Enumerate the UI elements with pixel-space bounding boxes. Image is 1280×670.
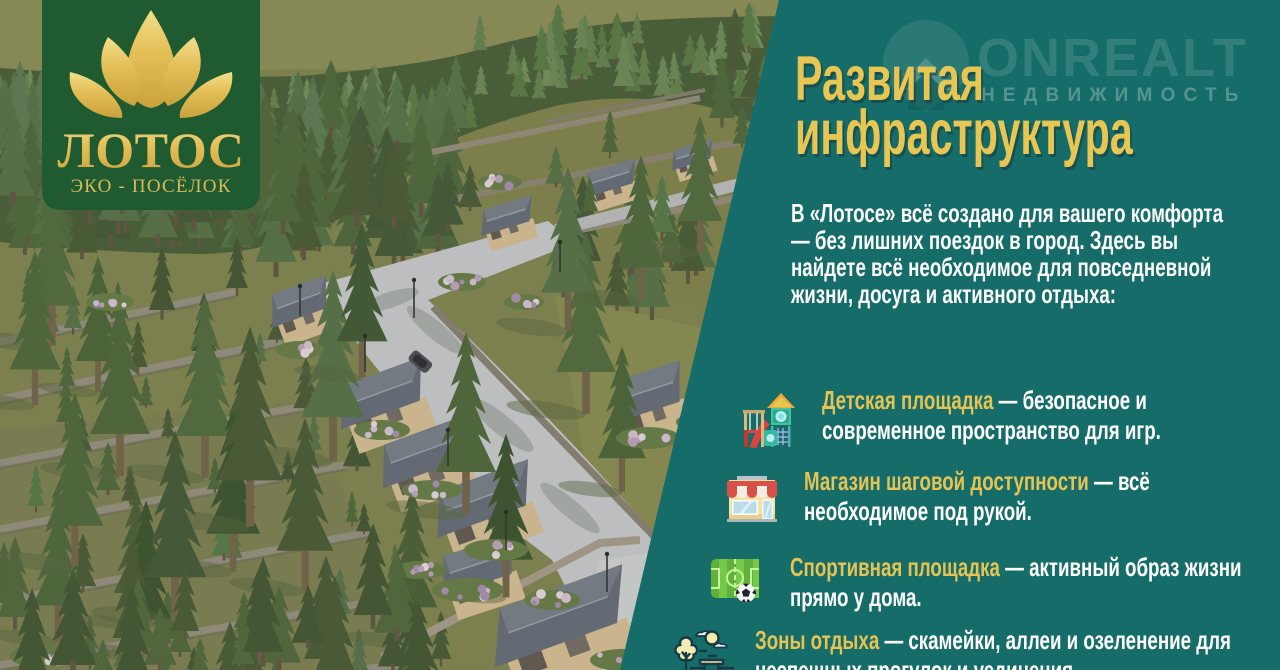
svg-text:ЛОТОС: ЛОТОС	[58, 122, 245, 178]
svg-text:ЭКО - ПОСЁЛОК: ЭКО - ПОСЁЛОК	[70, 176, 231, 197]
